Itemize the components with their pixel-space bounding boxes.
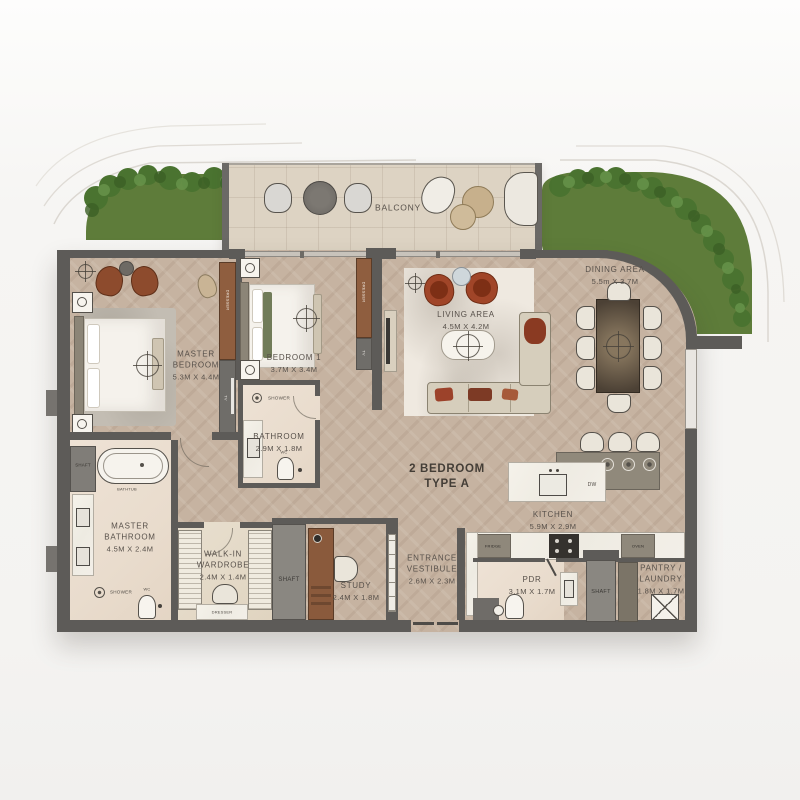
shaft-label: SHAFT [591,589,610,595]
interior-wall [57,432,171,440]
entrance-door-leaf [413,622,434,625]
exterior-wall-stub-right [686,336,742,349]
burner [555,539,559,543]
bar-stool [608,432,632,452]
dining-chair [576,336,595,360]
cooktop [549,534,579,558]
bathtub-label: BATHTUB [117,487,137,492]
burner [555,549,559,553]
interior-wall [212,432,238,440]
desk-chair [334,556,358,582]
bar-place-setting [622,458,635,471]
shaft-label: SHAFT [278,577,299,583]
room-name: WALK-IN WARDROBE [192,550,254,572]
ottoman [212,584,238,604]
living-area-label: LIVING AREA 4.5M X 4.2M [421,310,511,332]
shaft-box [272,524,306,620]
sink [76,508,90,527]
room-dims: 2.6M X 2.3M [403,576,461,586]
burner [568,539,572,543]
room-name: DINING AREA [567,265,663,276]
room-dims: 2.4M X 1.4M [192,572,254,582]
sink-faucet [556,469,559,472]
bar-place-setting [643,458,656,471]
exterior-wall-bottom-right [459,620,697,632]
room-name: BALCONY [375,202,421,213]
room-name: LIVING AREA [421,310,511,321]
interior-wall [171,522,204,528]
dining-chair [643,336,662,360]
island-sink [539,474,567,496]
balcony-round-table [303,181,337,215]
armchair-cushion [473,279,491,297]
study-label: STUDY 2.4M X 1.8M [327,581,385,603]
exterior-wall-top [57,250,229,258]
ceiling-light [78,264,93,279]
unit-title-line2: TYPE A [409,477,485,492]
side-table [119,261,134,276]
tv-screen [231,378,234,414]
shower-head [94,587,105,598]
room-dims: 2.9M X 1.8M [244,444,314,454]
balcony-side-table [450,204,476,230]
shelving [388,534,396,612]
living-partition-wall [372,250,382,410]
entrance-label: ENTRANCE VESTIBULE 2.6M X 2.3M [403,554,461,587]
dining-area-label: DINING AREA 5.5m X 3.7M [567,265,663,287]
dresser-label: DRESSER [212,610,233,615]
door-mullion [436,251,440,258]
entrance-door-leaf [437,622,458,625]
wall-fin-left [46,390,57,416]
shaft-label: SHAFT [75,463,91,468]
ceiling-light [296,308,317,329]
balcony-armchair [264,183,292,213]
unit-title: 2 BEDROOM TYPE A [409,462,485,492]
interior-wall [556,558,586,562]
kitchen-label: KITCHEN 5.9M X 2.9M [505,510,601,532]
dresser-label: DRESSER [362,282,367,303]
desk-lamp [313,534,322,543]
room-name: PDR [497,575,567,586]
burner [568,549,572,553]
sink [76,547,90,566]
sofa-pillow [468,388,492,401]
window-right [685,349,697,429]
room-dims: 5.9M X 2.9M [505,522,601,532]
wc-label: WC [143,587,150,592]
dining-chair [643,306,662,330]
wall-fin-left [46,546,57,572]
bedroom1-label: BEDROOM 1 3.7M X 3.4M [251,353,337,375]
interior-wall [473,558,545,562]
dishwasher-label: DW [588,482,597,488]
sofa-pillow [434,387,453,402]
washing-machine [651,594,679,620]
bathtub-drain [140,463,144,467]
exterior-wall-left [57,250,70,632]
room-dims: 4.5M X 4.2M [421,322,511,332]
interior-wall [240,522,272,528]
ceiling-light [606,334,631,359]
fridge-label: FRIDGE [485,544,501,549]
bathroom-wall [315,380,320,396]
sofa-pillow [501,388,518,401]
ceiling-light [408,276,422,290]
room-dims: 3.7M X 3.4M [251,365,337,375]
toilet [277,457,294,480]
room-name: PANTRY / LAUNDRY [635,564,687,586]
shower-label: SHOWER [268,396,290,401]
glass-side-table [452,267,471,286]
bathroom-wall [238,483,320,488]
toilet [505,594,524,619]
sink-faucet [549,469,552,472]
armchair-cushion [430,281,448,299]
bathroom-wall [315,420,320,488]
wall-pier [520,249,536,259]
dining-chair [576,306,595,330]
tap [298,468,302,472]
tv-label: TV [362,350,367,356]
dining-chair [576,366,595,390]
bar-stool [636,432,660,452]
bathtub-inner [103,453,163,479]
shower-head [252,393,262,403]
master-bed-headboard [74,316,84,416]
room-dims: 2.4M X 1.8M [327,593,385,603]
room-name: MASTER BATHROOM [98,522,162,544]
balcony-armchair [344,183,372,213]
room-name: ENTRANCE VESTIBULE [403,554,461,576]
tv-screen [386,318,390,364]
study-desk [308,528,334,620]
pdr-label: PDR 3.1M X 1.7M [497,575,567,597]
master-dresser [219,262,236,360]
pillow [87,324,100,364]
pillow [252,289,263,323]
room-name: BATHROOM [244,432,314,443]
shaft-box [70,446,96,492]
interior-wall [457,528,465,620]
room-dims: 4.5M X 2.4M [98,544,162,554]
room-dims: 5.5m X 3.7M [567,277,663,287]
bed-throw [263,292,272,358]
bathroom-label: BATHROOM 2.9M X 1.8M [244,432,314,454]
tv-label: TV [224,395,229,401]
balcony-sofa [504,172,538,226]
ceiling-light [136,354,159,377]
dining-chair [643,366,662,390]
exterior-wall-bottom-left [57,620,411,632]
interior-wall [171,440,178,620]
table-lamp [77,297,87,307]
floor-plan-image: BALCONY MASTER BEDROOM 5.3M X 4.4M DRESS… [0,0,800,800]
dresser-label: DRESSER [226,290,231,311]
walkin-label: WALK-IN WARDROBE 2.4M X 1.4M [192,550,254,583]
balcony-wall-left [222,163,229,258]
shower-label: SHOWER [110,590,132,595]
interior-wall [583,550,619,560]
round-sink [493,605,504,616]
ceiling-light [456,334,480,358]
tap [158,604,162,608]
sofa-throw [524,318,546,344]
bar-stool [580,432,604,452]
exterior-wall-right [685,429,697,632]
master-bathroom-label: MASTER BATHROOM 4.5M X 2.4M [98,522,162,555]
room-name: STUDY [327,581,385,592]
pantry-label: PANTRY / LAUNDRY 1.8M X 1.7M [635,564,687,597]
table-lamp [245,263,255,273]
bathroom-wall [238,380,320,385]
room-name: BEDROOM 1 [251,353,337,364]
dining-chair [607,394,631,413]
table-lamp [77,419,87,429]
balcony-label: BALCONY [375,202,421,213]
oven-label: OVEN [632,544,644,549]
room-name: KITCHEN [505,510,601,521]
room-dims: 3.1M X 1.7M [497,587,567,597]
toilet [138,595,156,619]
room-dims: 1.8M X 1.7M [635,586,687,596]
unit-title-line1: 2 BEDROOM [409,462,485,477]
door-mullion [300,251,304,258]
pillow [87,368,100,408]
